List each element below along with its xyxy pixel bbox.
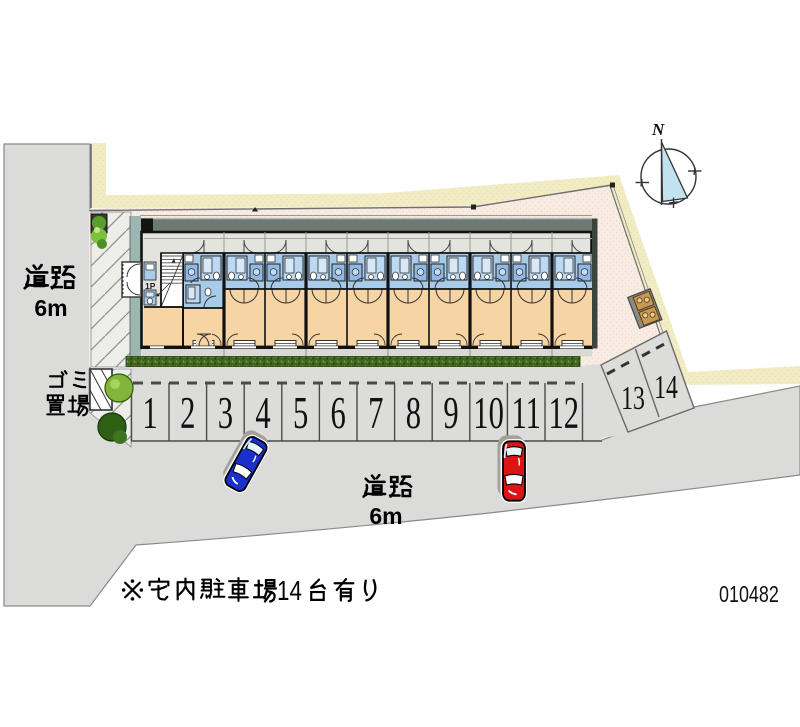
svg-text:1: 1 xyxy=(142,389,157,438)
svg-text:3: 3 xyxy=(218,389,233,438)
svg-text:1P: 1P xyxy=(145,281,156,291)
svg-text:8: 8 xyxy=(406,389,421,438)
svg-text:6m: 6m xyxy=(369,503,402,529)
svg-text:7: 7 xyxy=(368,389,383,438)
svg-text:5: 5 xyxy=(293,389,308,438)
svg-text:13: 13 xyxy=(621,380,645,417)
svg-text:2: 2 xyxy=(180,389,195,438)
svg-text:10: 10 xyxy=(473,389,504,438)
svg-text:010482: 010482 xyxy=(719,582,779,608)
svg-text:6: 6 xyxy=(331,389,346,438)
svg-text:N: N xyxy=(651,120,665,139)
svg-text:14: 14 xyxy=(654,369,678,406)
svg-text:14: 14 xyxy=(277,576,302,607)
svg-text:4: 4 xyxy=(255,389,270,438)
svg-text:6m: 6m xyxy=(34,295,67,321)
svg-text:11: 11 xyxy=(511,389,540,438)
svg-text:9: 9 xyxy=(443,389,458,438)
svg-text:12: 12 xyxy=(549,389,580,438)
